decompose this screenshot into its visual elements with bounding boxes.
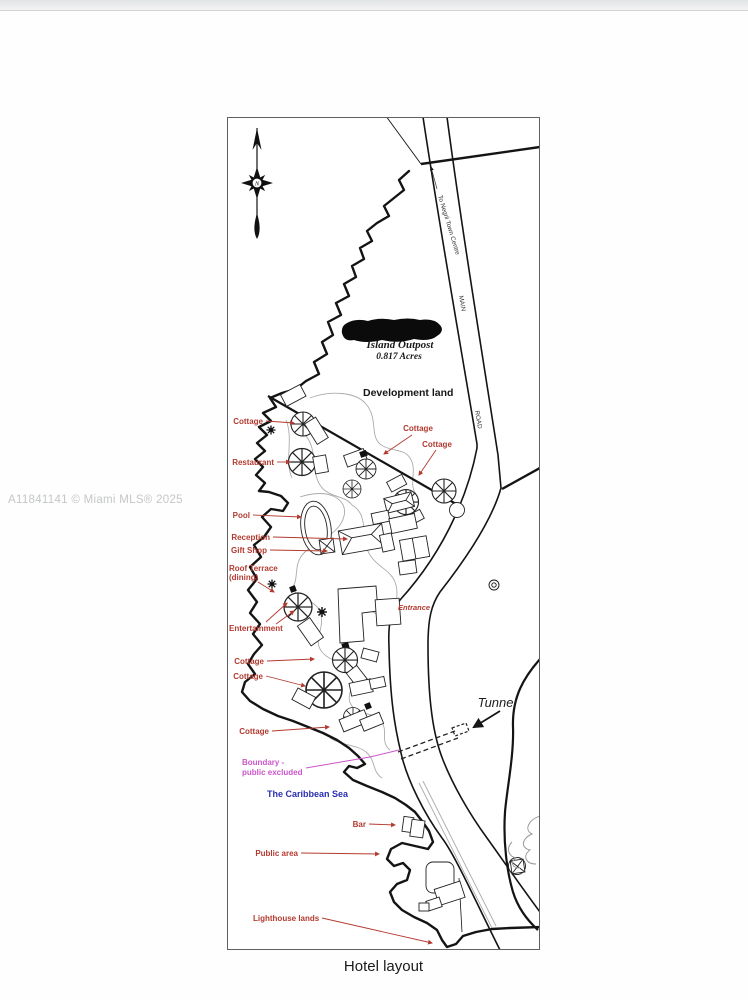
cottage-sw-label: Cottage bbox=[239, 727, 269, 736]
pool-label: Pool bbox=[233, 511, 250, 520]
bar-label: Bar bbox=[353, 820, 366, 829]
lighthouse-symbol bbox=[509, 816, 540, 875]
listing-photo-page: A11841141 © Miami MLS® 2025 bbox=[0, 0, 748, 1000]
top-strip bbox=[0, 0, 748, 11]
gift-shop-building bbox=[319, 538, 335, 554]
roof-terrace-label-line2: (dining) bbox=[229, 573, 259, 582]
caribbean-sea-label: The Caribbean Sea bbox=[267, 789, 349, 799]
reception-label: Reception bbox=[231, 533, 270, 542]
shore-buildings bbox=[402, 816, 465, 911]
gift-shop-label: Gift Shop bbox=[231, 546, 267, 555]
cottage-nw-label: Cottage bbox=[233, 417, 263, 426]
reception-complex bbox=[319, 492, 430, 643]
cottage-w2-label: Cottage bbox=[233, 672, 263, 681]
mls-watermark: A11841141 © Miami MLS® 2025 bbox=[8, 494, 183, 506]
parcel-acreage: 0.817 Acres bbox=[376, 352, 422, 362]
entertainment-label: Entertainment bbox=[229, 624, 283, 633]
cottage-mid-label: Cottage bbox=[403, 424, 433, 433]
lighthouse-lands-label: Lighthouse lands bbox=[253, 914, 320, 923]
tunnel-marking bbox=[398, 711, 500, 759]
roundabout-symbol-inner bbox=[492, 583, 496, 587]
boundary-label-line1: Boundary - bbox=[242, 758, 285, 767]
roof-terrace-label-line1: Roof Terrace bbox=[229, 564, 278, 573]
restaurant-label: Restaurant bbox=[232, 458, 274, 467]
cottage-w1-label: Cottage bbox=[234, 657, 264, 666]
cottage-ne-label: Cottage bbox=[422, 440, 452, 449]
coastline-path bbox=[242, 171, 539, 947]
development-land-label: Development land bbox=[363, 387, 453, 399]
compass-north-label: N bbox=[254, 180, 260, 187]
boundary-label-line2: public excluded bbox=[242, 768, 303, 777]
entrance-label: Entrance bbox=[398, 603, 430, 612]
road-label-main: MAIN bbox=[457, 295, 467, 312]
compass-rose: N bbox=[241, 128, 274, 239]
south-cottages bbox=[292, 642, 386, 738]
public-area-label: Public area bbox=[255, 849, 298, 858]
roundabout-symbol bbox=[489, 580, 499, 590]
parcel-title: Island Outpost 0.817 Acres bbox=[342, 319, 442, 363]
tunnel-label: Tunnel bbox=[478, 695, 518, 710]
hotel-layout-map: N Island Outpost 0.817 Acres bbox=[227, 117, 540, 950]
site-plan-svg: N Island Outpost 0.817 Acres bbox=[228, 118, 539, 949]
parcel-name: Island Outpost bbox=[366, 339, 435, 351]
image-caption: Hotel layout bbox=[227, 958, 540, 975]
north-cottages bbox=[267, 385, 465, 527]
